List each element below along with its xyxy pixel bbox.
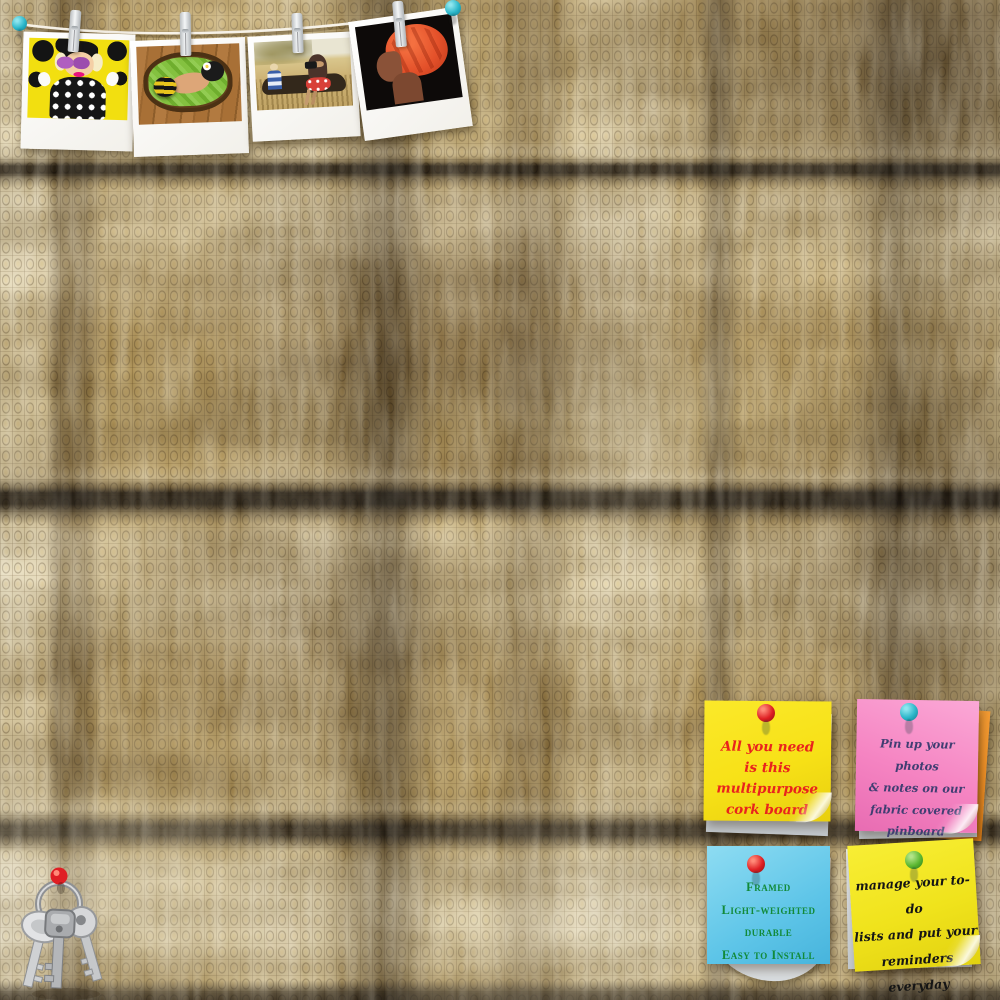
note-line: Light-weighted bbox=[707, 899, 830, 922]
note-pin-green bbox=[905, 851, 923, 869]
camera-shape bbox=[305, 61, 318, 68]
note-line: & notes on our bbox=[855, 777, 977, 801]
clothespin bbox=[180, 12, 192, 56]
note-line: Framed bbox=[707, 876, 830, 899]
neck-shape bbox=[391, 71, 424, 105]
key-ring-with-keys bbox=[2, 852, 127, 1000]
sticky-note-blue: Framed Light-weighted durable Easy to In… bbox=[707, 846, 830, 964]
string-pin-left bbox=[12, 16, 27, 31]
note-pin-teal bbox=[900, 703, 918, 721]
sticky-note-pink: Pin up your photos & notes on our fabric… bbox=[855, 699, 979, 833]
child-shape bbox=[267, 70, 282, 90]
string-pin-right bbox=[445, 0, 461, 16]
note-line: Easy to Install bbox=[707, 944, 830, 967]
note-line: All you need bbox=[704, 736, 831, 758]
polaroid-photo-3 bbox=[247, 31, 360, 142]
polka-dot-top-shape bbox=[49, 77, 106, 120]
glove-shape bbox=[36, 70, 52, 87]
note-line: durable bbox=[707, 921, 830, 944]
clothespin bbox=[291, 13, 303, 53]
lips-shape bbox=[73, 72, 84, 77]
glove-shape bbox=[104, 70, 120, 88]
fabric-pinboard: All you need is this multipurpose cork b… bbox=[0, 0, 1000, 1000]
polaroid-photo-4 bbox=[348, 7, 473, 141]
photo-orange-head-wrap bbox=[355, 14, 463, 111]
note-line: Pin up your photos bbox=[856, 733, 979, 779]
note-pin-red bbox=[757, 704, 775, 722]
note-pin-red bbox=[747, 855, 765, 873]
key-middle bbox=[42, 909, 75, 988]
